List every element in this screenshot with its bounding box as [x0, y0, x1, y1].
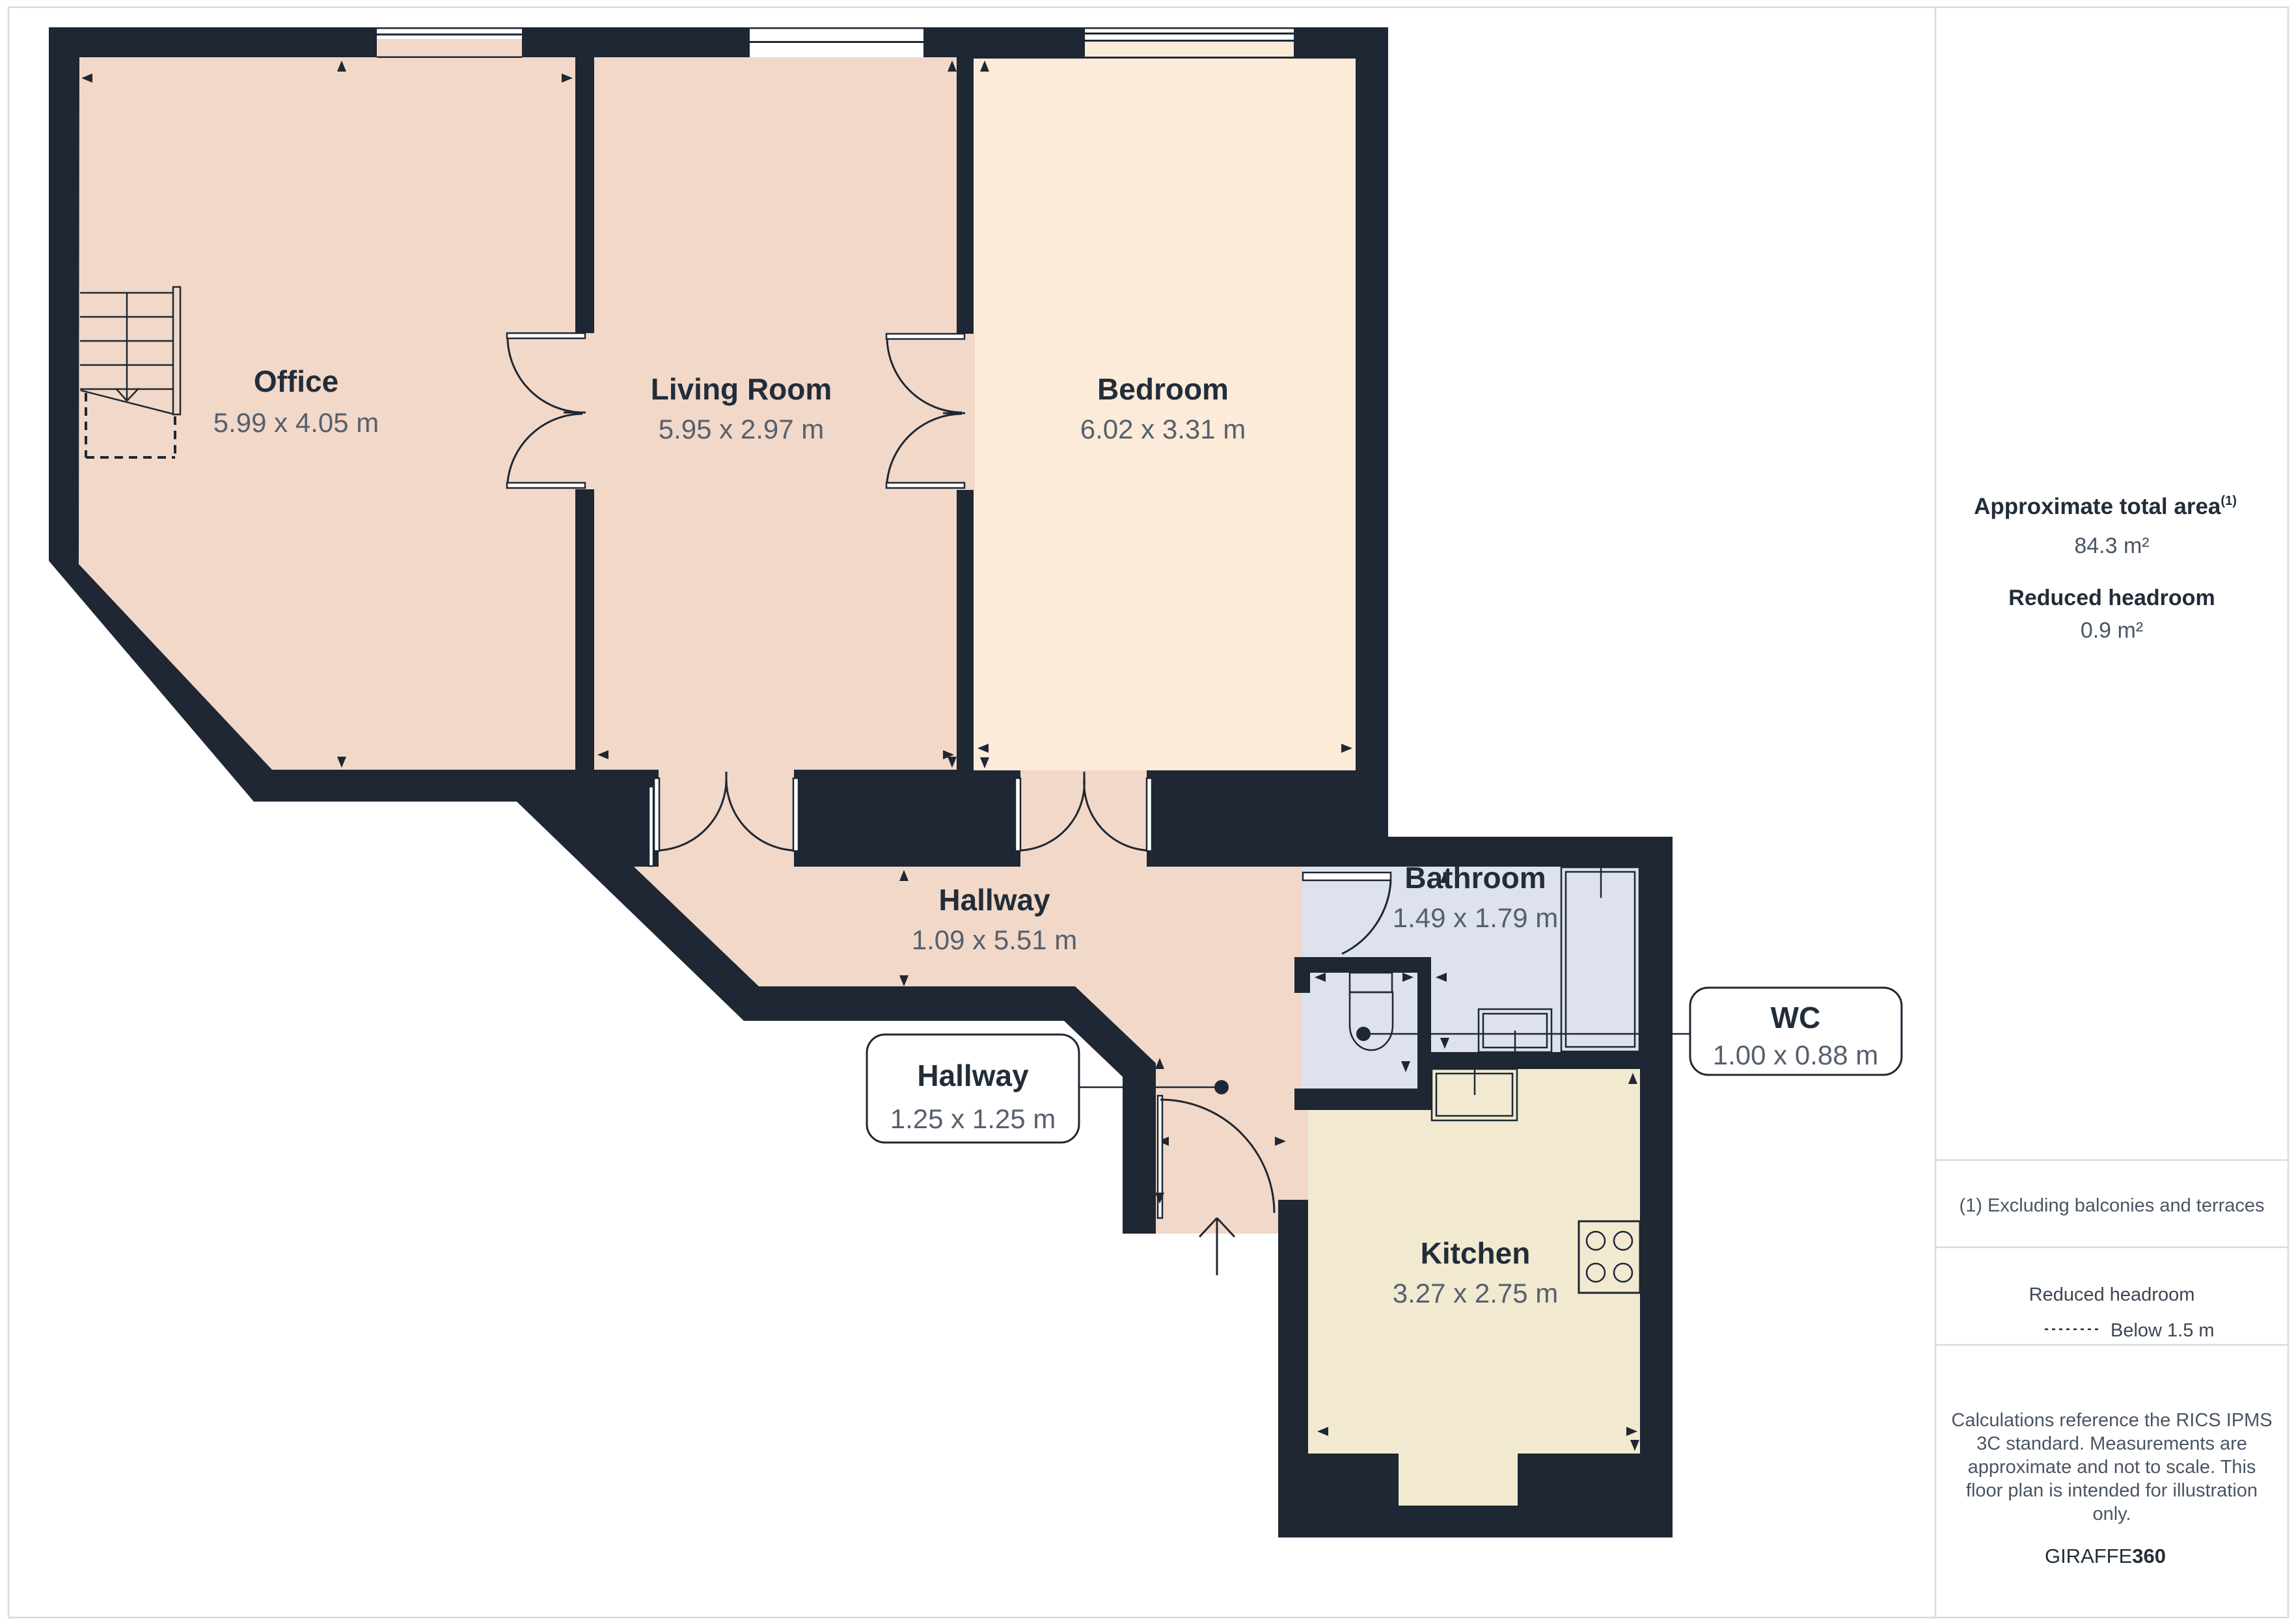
svg-text:5.95 x 2.97 m: 5.95 x 2.97 m — [659, 414, 824, 444]
svg-text:1.09 x 5.51 m: 1.09 x 5.51 m — [912, 925, 1077, 955]
svg-text:Bathroom: Bathroom — [1404, 861, 1546, 895]
svg-text:Office: Office — [254, 364, 338, 398]
svg-text:Hallway: Hallway — [938, 883, 1050, 917]
svg-text:1.00 x 0.88 m: 1.00 x 0.88 m — [1713, 1040, 1878, 1070]
svg-text:Living Room: Living Room — [651, 372, 832, 406]
svg-text:1.49 x 1.79 m: 1.49 x 1.79 m — [1393, 902, 1558, 933]
svg-text:0.9 m²: 0.9 m² — [2081, 618, 2143, 643]
svg-text:3C standard. Measurements are: 3C standard. Measurements are — [1976, 1433, 2247, 1454]
svg-text:Hallway: Hallway — [917, 1059, 1029, 1092]
svg-text:84.3 m²: 84.3 m² — [2074, 534, 2149, 558]
svg-text:GIRAFFE360: GIRAFFE360 — [2045, 1545, 2166, 1567]
svg-text:Calculations reference the RIC: Calculations reference the RICS IPMS — [1951, 1410, 2272, 1431]
svg-text:floor plan is intended for ill: floor plan is intended for illustration — [1966, 1480, 2258, 1501]
svg-text:Reduced headroom: Reduced headroom — [2029, 1284, 2195, 1305]
svg-text:Kitchen: Kitchen — [1421, 1236, 1531, 1270]
svg-text:WC: WC — [1771, 1001, 1821, 1035]
svg-text:(1) Excluding balconies and te: (1) Excluding balconies and terraces — [1959, 1195, 2264, 1216]
svg-text:1.25 x 1.25 m: 1.25 x 1.25 m — [890, 1103, 1056, 1134]
svg-text:Approximate total area(1): Approximate total area(1) — [1974, 494, 2237, 519]
svg-text:5.99 x 4.05 m: 5.99 x 4.05 m — [213, 407, 379, 438]
svg-text:approximate and not to scale.: approximate and not to scale. This — [1968, 1457, 2256, 1478]
svg-text:Below 1.5 m: Below 1.5 m — [2111, 1320, 2215, 1341]
svg-text:only.: only. — [2092, 1504, 2131, 1524]
svg-text:6.02 x 3.31 m: 6.02 x 3.31 m — [1080, 414, 1246, 444]
svg-text:3.27 x 2.75 m: 3.27 x 2.75 m — [1393, 1278, 1558, 1308]
svg-text:Bedroom: Bedroom — [1097, 372, 1229, 406]
svg-text:Reduced headroom: Reduced headroom — [2008, 586, 2215, 610]
